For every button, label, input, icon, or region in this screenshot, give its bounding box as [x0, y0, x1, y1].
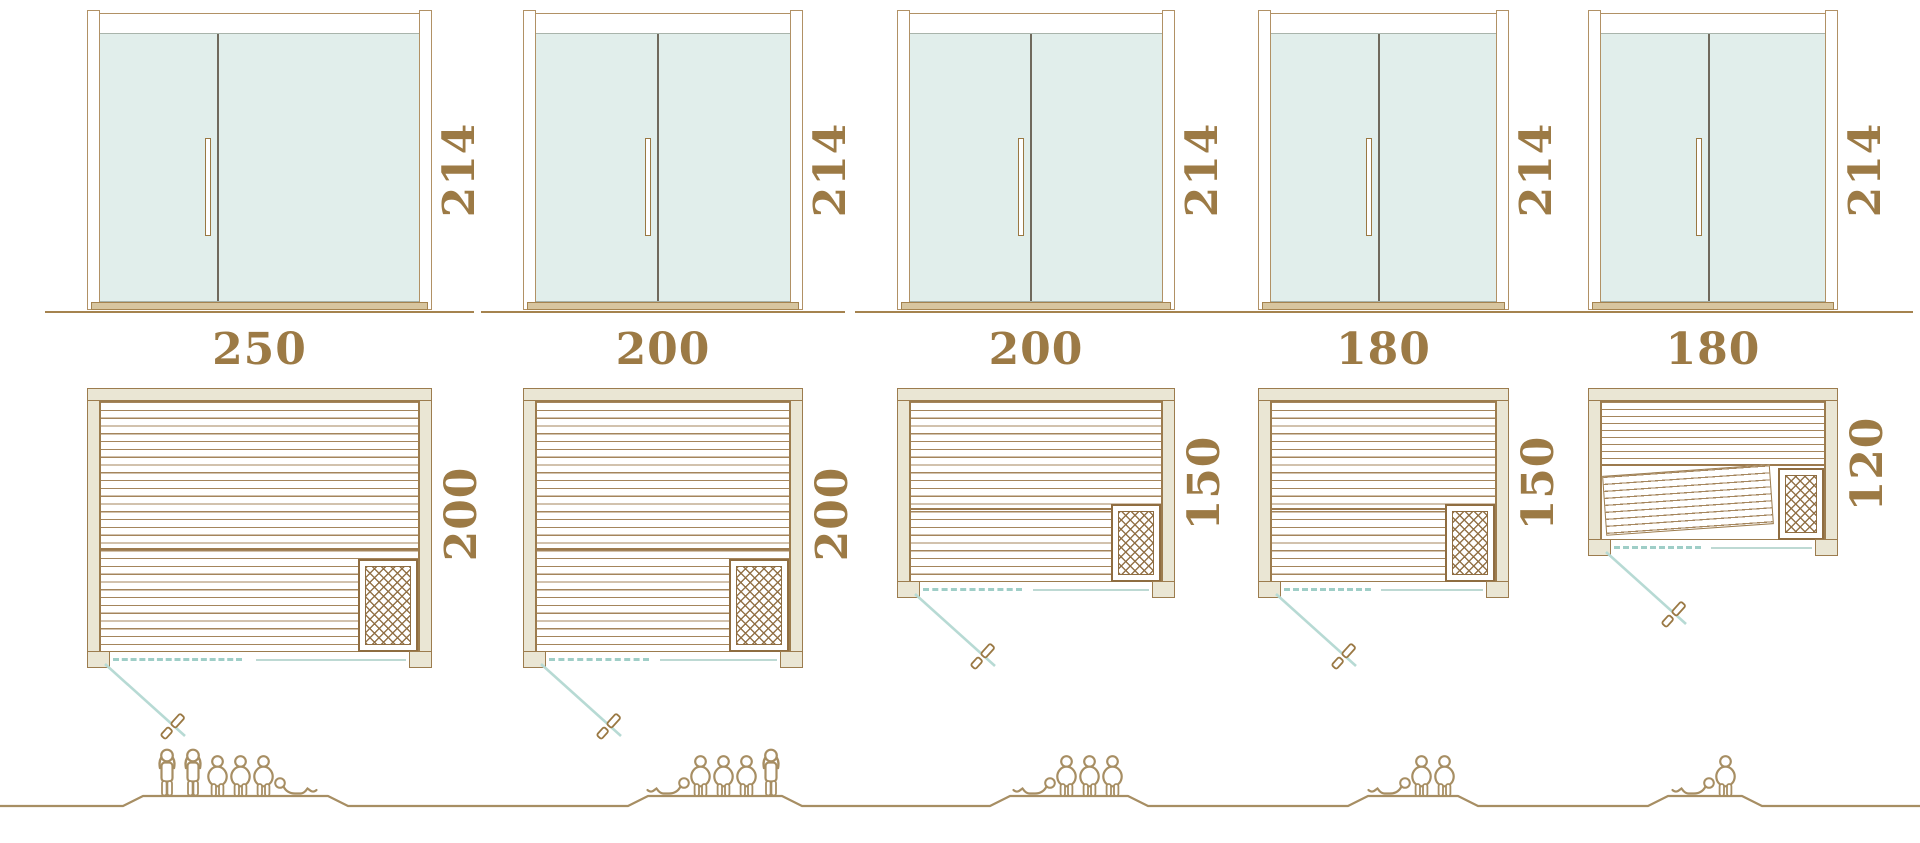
door-swing-icon: [905, 590, 1045, 700]
door-opening-line: [256, 659, 406, 662]
floor-plan: [897, 388, 1175, 598]
wall: [1258, 388, 1509, 401]
wall: [897, 388, 1175, 401]
wall: [87, 400, 100, 652]
ground-line: [1546, 311, 1913, 314]
person-lying-icon: [645, 775, 691, 797]
heater-hatch-icon: [736, 566, 782, 645]
heater-hatch-icon: [1785, 475, 1817, 533]
door-frame-right-post: [1162, 10, 1175, 310]
door-glass-panels: [1270, 33, 1497, 302]
door-frame-left-post: [897, 10, 910, 310]
door-sill: [901, 302, 1171, 310]
floor-plan: [523, 388, 803, 668]
wall-stub: [1486, 581, 1509, 598]
person-lying-icon: [273, 775, 319, 797]
door-sill: [1592, 302, 1834, 310]
plan-width-label: 200: [897, 328, 1175, 372]
door-frame-left-post: [523, 10, 536, 310]
heater-hatch-icon: [1118, 511, 1154, 575]
door-frame-header: [1269, 13, 1498, 34]
ground-line: [481, 311, 845, 314]
wall: [419, 400, 432, 652]
back-bench: [1602, 402, 1824, 466]
plan-depth-label: 120: [1843, 422, 1893, 506]
wall: [1588, 400, 1601, 540]
capacity-group: [1363, 745, 1461, 797]
door-frame-right-post: [419, 10, 432, 310]
door-handle-icon: [205, 138, 211, 236]
wall: [87, 388, 432, 401]
door-frame-header: [98, 13, 421, 34]
heater: [1778, 468, 1824, 540]
ground-line: [45, 311, 474, 314]
sauna-size-comparison-diagram: 214 250 200: [0, 0, 1920, 843]
person-lying-icon: [1011, 775, 1057, 797]
door-frame-header: [908, 13, 1164, 34]
wall: [1825, 400, 1838, 540]
door-height-label: 214: [1178, 128, 1228, 212]
plan-depth-label: 200: [808, 472, 858, 556]
plan-depth-label: 200: [437, 472, 487, 556]
door-frame-left-post: [87, 10, 100, 310]
door-handle-icon: [1696, 138, 1702, 236]
wall: [897, 400, 910, 582]
folding-bench: [1602, 464, 1774, 536]
capacity-group: [140, 745, 330, 797]
door-handle-icon: [1018, 138, 1024, 236]
sauna-unit: 214 200 200: [523, 0, 803, 843]
wall-stub: [1152, 581, 1175, 598]
door-sill: [527, 302, 799, 310]
heater-hatch-icon: [1452, 511, 1488, 575]
capacity-group: [645, 745, 785, 797]
door-frame-header: [1599, 13, 1827, 34]
door-sill: [1262, 302, 1505, 310]
plan-width-label: 200: [523, 328, 803, 372]
wall: [1162, 400, 1175, 582]
wall-stub: [1815, 539, 1838, 556]
ground-line: [855, 311, 1217, 314]
door-height-label: 214: [1841, 128, 1891, 212]
door-meeting-stile: [1030, 34, 1032, 301]
heater-hatch-icon: [365, 566, 411, 645]
wall: [1496, 400, 1509, 582]
heater: [358, 559, 418, 652]
capacity-group: [1006, 745, 1130, 797]
plan-depth-label: 150: [1180, 441, 1230, 525]
door-swing-icon: [1596, 548, 1736, 658]
door-elevation: 214: [1258, 10, 1509, 310]
door-elevation: 214: [897, 10, 1175, 310]
person-lying-icon: [1366, 775, 1412, 797]
capacity-group: [1663, 745, 1745, 797]
wall: [523, 400, 536, 652]
door-frame-header: [534, 13, 792, 34]
plan-width-label: 180: [1588, 328, 1838, 372]
floor-plan: [1258, 388, 1509, 598]
door-glass-panels: [535, 33, 791, 302]
door-handle-icon: [645, 138, 651, 236]
door-height-label: 214: [1512, 128, 1562, 212]
sauna-unit: 214 180 150: [1258, 0, 1509, 843]
door-sill: [91, 302, 428, 310]
sauna-unit: 214 250 200: [87, 0, 432, 843]
door-meeting-stile: [217, 34, 219, 301]
door-height-label: 214: [435, 128, 485, 212]
door-opening-line: [1033, 589, 1149, 592]
wall: [1258, 400, 1271, 582]
door-frame-right-post: [1496, 10, 1509, 310]
door-frame-right-post: [790, 10, 803, 310]
door-elevation: 214: [1588, 10, 1838, 310]
door-glass-panels: [99, 33, 420, 302]
sauna-unit: 214 200 150: [897, 0, 1175, 843]
plan-width-label: 180: [1258, 328, 1509, 372]
door-height-label: 214: [806, 128, 856, 212]
door-frame-right-post: [1825, 10, 1838, 310]
door-meeting-stile: [1378, 34, 1380, 301]
door-opening-line: [660, 659, 777, 662]
door-elevation: 214: [87, 10, 432, 310]
wall-stub: [409, 651, 432, 668]
plan-width-label: 250: [87, 328, 432, 372]
door-swing-icon: [1266, 590, 1406, 700]
ground-line: [1216, 311, 1551, 314]
door-meeting-stile: [657, 34, 659, 301]
door-glass-panels: [1600, 33, 1826, 302]
person-seated-icon: [1099, 755, 1126, 797]
person-seated-icon: [1431, 755, 1458, 797]
wall: [1588, 388, 1838, 401]
sauna-unit: 214 180 120: [1588, 0, 1838, 843]
door-elevation: 214: [523, 10, 803, 310]
floor-plan: [87, 388, 432, 668]
wall: [523, 388, 803, 401]
door-frame-left-post: [1258, 10, 1271, 310]
door-glass-panels: [909, 33, 1163, 302]
heater: [1445, 504, 1495, 582]
bench-edge-line: [101, 548, 418, 550]
heater: [1111, 504, 1161, 582]
door-frame-left-post: [1588, 10, 1601, 310]
door-meeting-stile: [1708, 34, 1710, 301]
person-standing-icon: [756, 747, 786, 797]
person-lying-icon: [1670, 775, 1716, 797]
wall: [790, 400, 803, 652]
plan-depth-label: 150: [1514, 441, 1564, 525]
heater: [729, 559, 789, 652]
wall-stub: [780, 651, 803, 668]
floor-plan: [1588, 388, 1838, 556]
bench-edge-line: [537, 548, 789, 550]
door-handle-icon: [1366, 138, 1372, 236]
